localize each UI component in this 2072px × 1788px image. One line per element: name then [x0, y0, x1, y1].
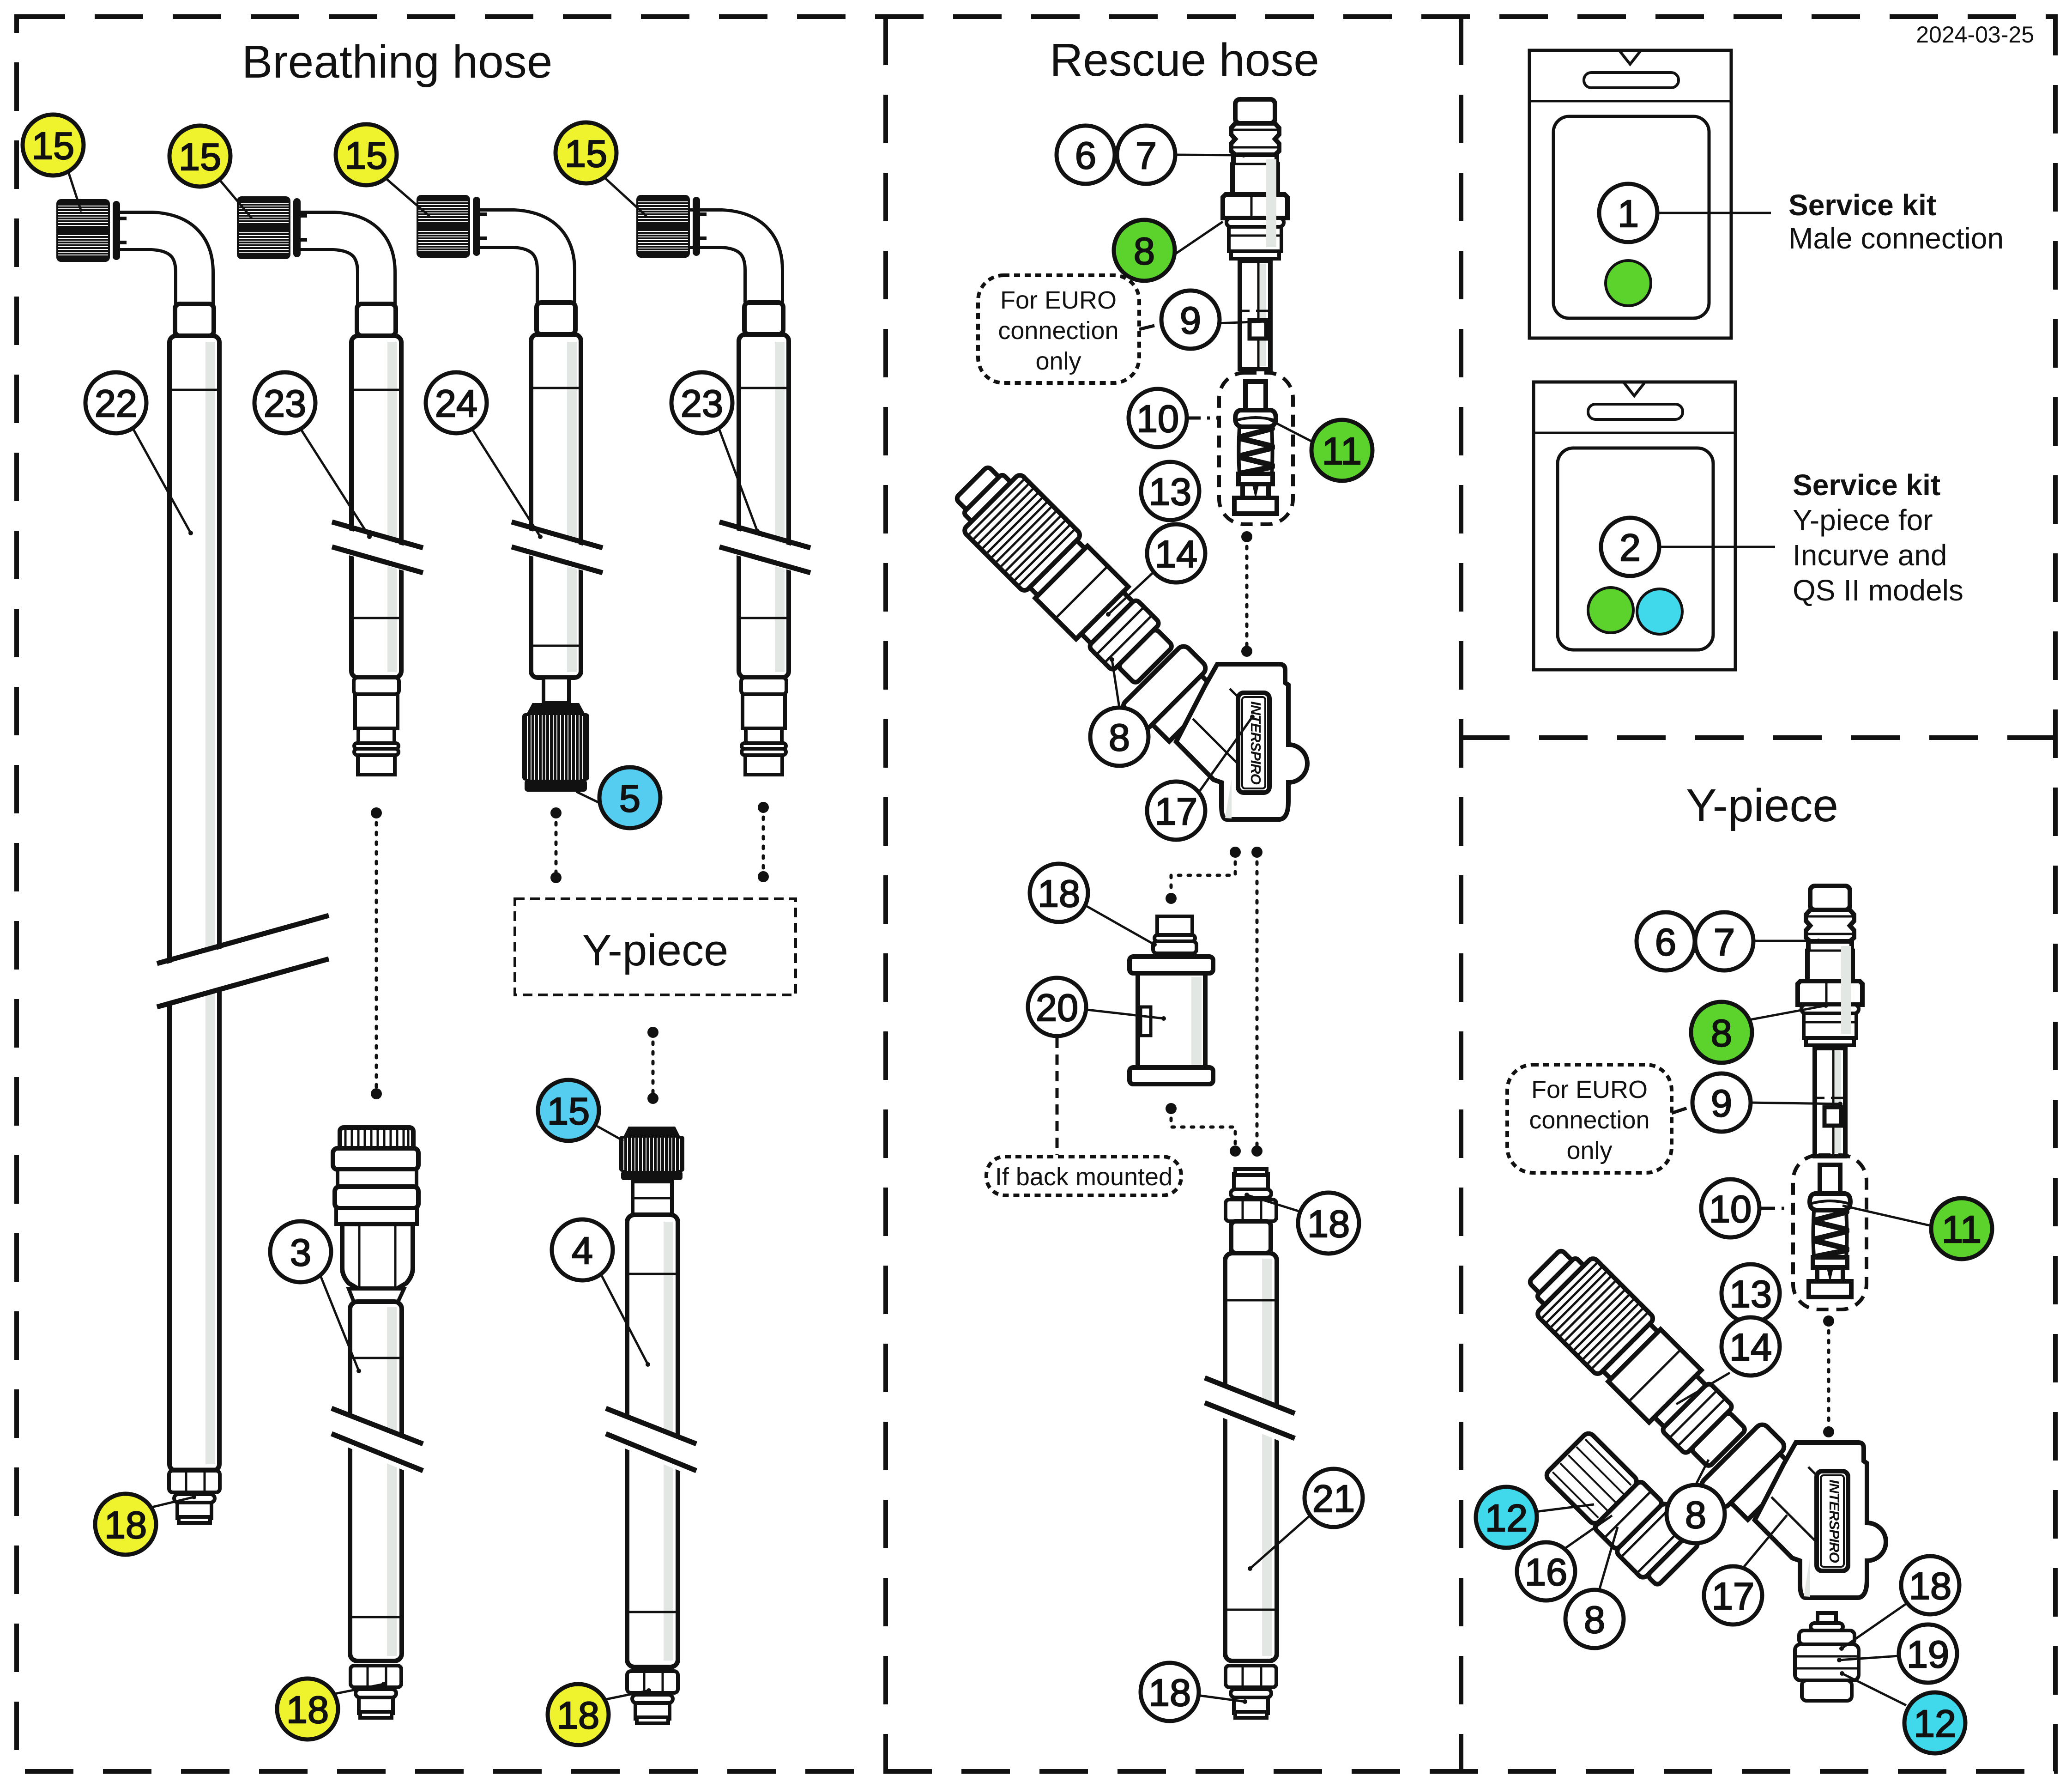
- svg-text:connection: connection: [1529, 1106, 1649, 1134]
- svg-text:Y-piece for: Y-piece for: [1793, 503, 1933, 537]
- svg-text:2024-03-25: 2024-03-25: [1916, 22, 2034, 48]
- svg-text:For EURO: For EURO: [1000, 286, 1117, 314]
- svg-text:15: 15: [547, 1090, 590, 1133]
- svg-text:8: 8: [1109, 716, 1130, 759]
- svg-text:24: 24: [435, 382, 477, 425]
- svg-text:18: 18: [286, 1688, 329, 1731]
- svg-text:18: 18: [1307, 1202, 1350, 1245]
- svg-text:11: 11: [1322, 430, 1362, 473]
- svg-text:17: 17: [1712, 1575, 1754, 1618]
- svg-text:15: 15: [32, 124, 74, 167]
- svg-text:20: 20: [1036, 986, 1078, 1029]
- svg-text:8: 8: [1685, 1493, 1706, 1536]
- svg-text:10: 10: [1136, 397, 1179, 440]
- svg-text:Male connection: Male connection: [1788, 222, 2004, 255]
- svg-text:16: 16: [1525, 1551, 1567, 1594]
- svg-text:connection: connection: [998, 317, 1118, 345]
- svg-text:Breathing hose: Breathing hose: [242, 36, 553, 88]
- svg-text:14: 14: [1155, 533, 1197, 576]
- svg-text:6: 6: [1075, 134, 1096, 177]
- svg-text:13: 13: [1149, 470, 1191, 513]
- svg-text:5: 5: [619, 777, 640, 820]
- svg-text:3: 3: [290, 1231, 311, 1274]
- svg-text:7: 7: [1136, 134, 1157, 177]
- svg-text:18: 18: [104, 1503, 147, 1546]
- svg-text:23: 23: [264, 382, 306, 425]
- svg-text:19: 19: [1907, 1633, 1949, 1676]
- svg-text:For EURO: For EURO: [1531, 1076, 1648, 1103]
- svg-text:15: 15: [345, 134, 387, 177]
- svg-text:11: 11: [1942, 1208, 1981, 1251]
- svg-text:14: 14: [1729, 1326, 1772, 1369]
- svg-text:Y-piece: Y-piece: [1686, 780, 1838, 831]
- svg-text:Service kit: Service kit: [1788, 188, 1936, 222]
- svg-text:Y-piece: Y-piece: [582, 926, 729, 975]
- svg-text:21: 21: [1312, 1477, 1355, 1520]
- svg-text:8: 8: [1711, 1012, 1732, 1055]
- svg-text:2: 2: [1619, 526, 1641, 569]
- svg-text:15: 15: [565, 132, 607, 175]
- svg-text:15: 15: [179, 135, 221, 178]
- svg-text:12: 12: [1485, 1497, 1528, 1539]
- svg-text:1: 1: [1618, 192, 1639, 235]
- svg-text:QS II models: QS II models: [1793, 574, 1963, 607]
- svg-text:only: only: [1566, 1137, 1612, 1164]
- svg-text:7: 7: [1714, 921, 1735, 964]
- svg-text:9: 9: [1711, 1082, 1732, 1125]
- svg-text:18: 18: [557, 1694, 599, 1737]
- svg-text:Incurve and: Incurve and: [1793, 539, 1947, 572]
- svg-text:8: 8: [1584, 1598, 1605, 1641]
- svg-text:4: 4: [572, 1229, 593, 1272]
- svg-text:22: 22: [95, 382, 137, 425]
- svg-text:9: 9: [1180, 299, 1201, 342]
- svg-text:Service kit: Service kit: [1793, 468, 1940, 502]
- svg-text:17: 17: [1155, 790, 1197, 833]
- svg-text:8: 8: [1134, 230, 1155, 273]
- svg-text:10: 10: [1709, 1188, 1752, 1230]
- svg-text:6: 6: [1655, 921, 1676, 964]
- svg-text:12: 12: [1914, 1702, 1956, 1745]
- svg-text:13: 13: [1729, 1273, 1772, 1315]
- svg-text:If back mounted: If back mounted: [995, 1163, 1172, 1191]
- svg-text:18: 18: [1148, 1671, 1191, 1714]
- svg-text:only: only: [1035, 347, 1081, 375]
- svg-text:18: 18: [1909, 1564, 1951, 1607]
- svg-text:23: 23: [681, 382, 723, 425]
- svg-text:Rescue hose: Rescue hose: [1050, 34, 1319, 86]
- svg-text:18: 18: [1038, 872, 1080, 915]
